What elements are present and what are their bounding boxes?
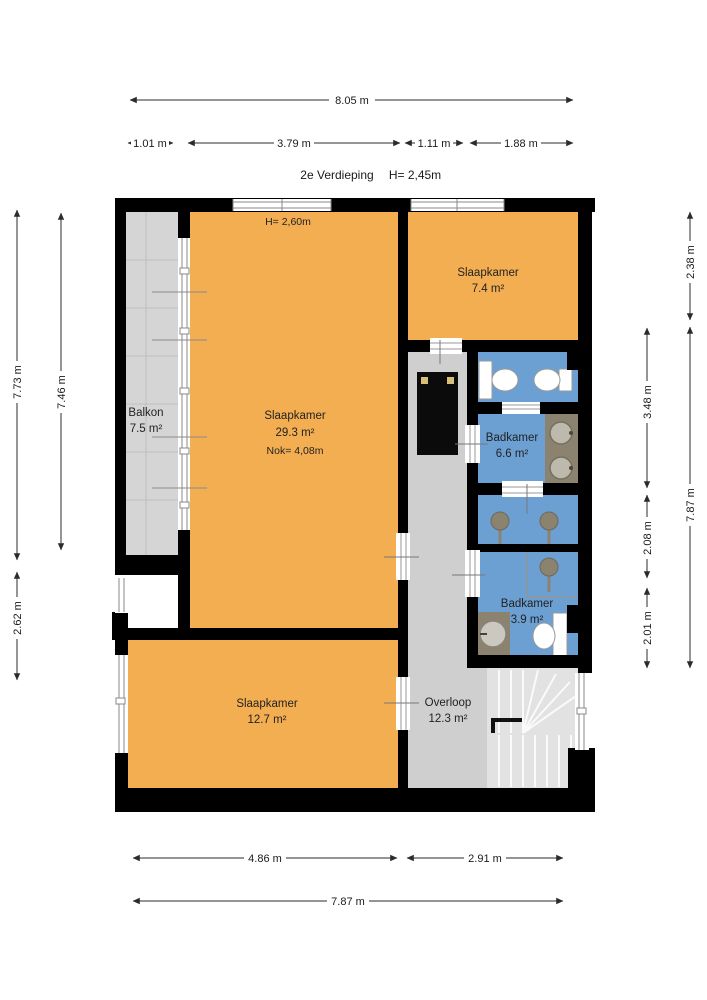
dim-label-left-lower: 2.62 m: [12, 601, 24, 635]
tap-bottom: [569, 466, 573, 470]
shaft-mark-right: [447, 377, 454, 384]
floor-ceiling-height: H= 2,45m: [389, 168, 441, 182]
toilet-right: [534, 369, 572, 391]
sink-basin-top: [550, 422, 572, 444]
dim-left-outer: 7.73 m: [10, 210, 24, 560]
dim-label-top-seg4: 1.88 m: [504, 138, 538, 150]
wall-left-upper: [115, 212, 126, 557]
wall-bedroom-divider: [112, 628, 408, 640]
wall-left-mid: [115, 640, 128, 655]
dim-label-left-outer: 7.73 m: [12, 365, 24, 399]
dim-right-inner-low: 2.01 m: [640, 588, 654, 668]
floor-title: 2e Verdieping: [300, 168, 373, 182]
overloop-name: Overloop: [425, 697, 472, 709]
dim-label-top-seg3: 1.11 m: [418, 138, 451, 150]
wall-east-stub-a: [567, 352, 578, 370]
window-left-small: [115, 577, 128, 613]
slaapkamer-groot-name: Slaapkamer: [264, 410, 326, 422]
wall-bath66-south-b: [543, 483, 578, 495]
badkamer-groot-name: Badkamer: [486, 432, 539, 444]
window-top-right: [411, 199, 504, 211]
slaapkamer-klein-name: Slaapkamer: [457, 267, 519, 279]
wall-top: [115, 198, 595, 212]
dim-right-top: 2.38 m: [683, 212, 697, 320]
tap-top: [569, 431, 573, 435]
ceiling-note: H= 2,60m: [265, 216, 311, 228]
balkon-name: Balkon: [128, 407, 163, 419]
dim-label-right-inner-mid: 2.08 m: [642, 521, 654, 555]
wall-glass-top-stub: [178, 212, 190, 238]
wall-bath-south: [467, 655, 578, 668]
dim-top-seg1: 1.01 m: [128, 136, 173, 150]
vanity-double-sink: [545, 414, 578, 490]
wall-bath-west-a: [467, 352, 478, 425]
dim-label-right-outer: 7.87 m: [685, 488, 697, 522]
dim-top-seg3: 1.11 m: [405, 136, 463, 150]
wall-bottom: [115, 788, 595, 812]
wall-bath-west-c: [467, 597, 478, 655]
dim-label-top-total: 8.05 m: [335, 95, 369, 107]
dim-label-top-seg2: 3.79 m: [277, 138, 311, 150]
dim-right-outer: 7.87 m: [683, 327, 697, 668]
dim-bottom-total: 7.87 m: [133, 894, 563, 908]
sink-basin-bottom: [550, 457, 572, 479]
balcony-floor: [126, 212, 178, 555]
dim-left-lower: 2.62 m: [10, 572, 24, 680]
wall-bedroom-small-south-a: [398, 340, 430, 352]
window-top-left: [233, 199, 331, 211]
wall-middle-upper: [398, 212, 408, 533]
wall-middle-lower-b: [398, 730, 408, 788]
door-toilet-area: [502, 402, 540, 414]
wall-toilet-partition-b: [540, 402, 578, 414]
dim-bottom-seg1: 4.86 m: [133, 851, 397, 865]
dim-top-total: 8.05 m: [130, 93, 573, 107]
stairs-floor: [487, 668, 578, 788]
window-stairs-right: [575, 673, 589, 750]
dim-label-left-inner: 7.46 m: [56, 375, 68, 409]
wall-bath-west-b: [467, 463, 478, 550]
slaapkamer-laag-area: 12.7 m²: [248, 714, 287, 726]
dim-top-seg4: 1.88 m: [470, 136, 573, 150]
overloop-area: 12.3 m²: [429, 713, 468, 725]
slaapkamer-groot-area: 29.3 m²: [276, 427, 315, 439]
ridge-height-note: Nok= 4,08m: [267, 445, 324, 457]
shaft: [417, 372, 458, 455]
wall-right-bottom-corner: [568, 748, 595, 788]
dim-label-bottom-seg2: 2.91 m: [468, 853, 502, 865]
dim-top-seg2: 3.79 m: [188, 136, 400, 150]
dim-bottom-seg2: 2.91 m: [407, 851, 563, 865]
sink-small-bathroom: [478, 612, 510, 658]
floor-plan-page: Balkon 7.5 m² H= 2,60m Slaapkamer 29.3 m…: [0, 0, 707, 1000]
shaft-mark-left: [421, 377, 428, 384]
dim-label-top-seg1: 1.01 m: [133, 138, 167, 150]
wall-left-lower: [115, 753, 128, 788]
slaapkamer-laag-name: Slaapkamer: [236, 698, 298, 710]
plan-title: 2e Verdieping H= 2,45m: [300, 168, 441, 182]
dim-label-right-inner-top: 3.48 m: [642, 385, 654, 419]
wall-bath66-south-a: [467, 483, 502, 495]
wall-toilet-partition-a: [478, 402, 502, 414]
balkon-area: 7.5 m²: [130, 423, 163, 435]
wall-glass-bottom-stub: [178, 530, 190, 628]
wall-east-stub-b: [567, 605, 578, 633]
wall-bedroom-small-south-b: [462, 340, 578, 352]
badkamer-klein-name: Badkamer: [501, 598, 554, 610]
dim-label-bottom-seg1: 4.86 m: [248, 853, 282, 865]
dim-label-right-top: 2.38 m: [685, 245, 697, 279]
wall-middle-between: [398, 580, 408, 628]
window-balcony-glass-wall: [179, 238, 190, 530]
slaapkamer-klein-area: 7.4 m²: [472, 283, 505, 295]
wall-right: [578, 212, 592, 673]
dim-left-inner: 7.46 m: [54, 213, 68, 550]
badkamer-klein-area: 3.9 m²: [511, 614, 544, 626]
window-left-lower: [115, 655, 128, 753]
dim-right-inner-top: 3.48 m: [640, 328, 654, 488]
dim-right-inner-mid: 2.08 m: [640, 495, 654, 578]
floor-plan-canvas: Balkon 7.5 m² H= 2,60m Slaapkamer 29.3 m…: [0, 0, 707, 1000]
wall-middle-lower-a: [398, 640, 408, 677]
wall-shower-strip-south: [467, 544, 578, 552]
dim-label-right-inner-low: 2.01 m: [642, 611, 654, 645]
badkamer-groot-area: 6.6 m²: [496, 448, 529, 460]
dim-label-bottom-total: 7.87 m: [331, 896, 365, 908]
